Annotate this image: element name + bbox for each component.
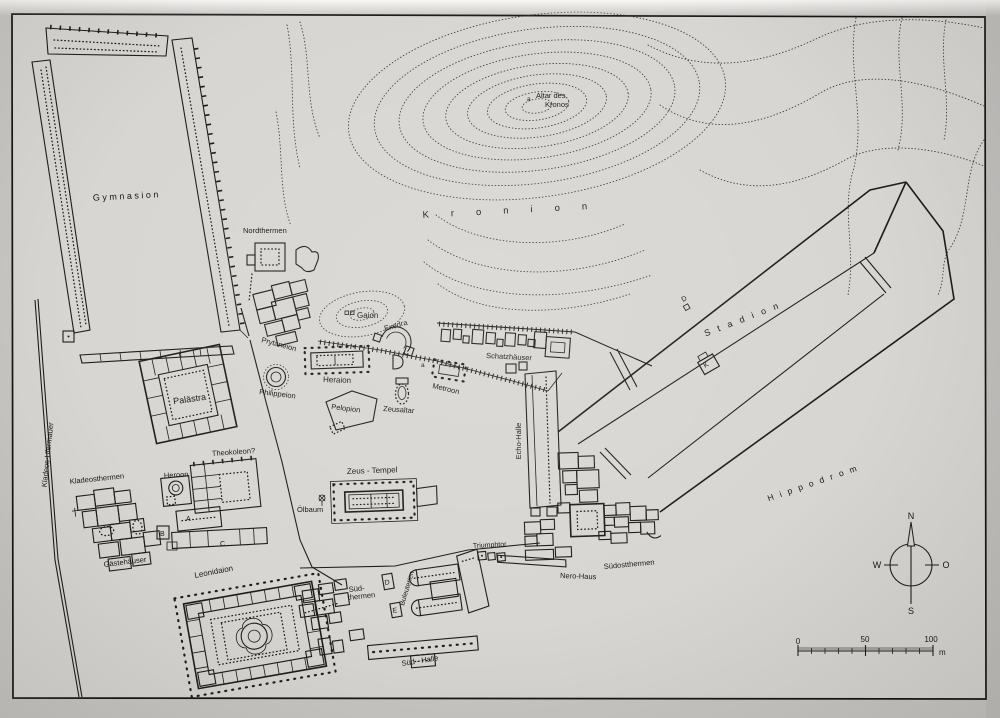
marker-hall-b: B	[160, 531, 165, 538]
compass-east: O	[942, 560, 949, 570]
label-echo-halle: Echo-Halle	[514, 423, 523, 460]
marker-a-metroon: a	[421, 362, 425, 369]
label-heroon: Heroon	[164, 470, 189, 480]
compass-south: S	[908, 606, 914, 616]
compass-north: N	[908, 511, 915, 521]
compass-west: W	[873, 560, 882, 570]
scale-unit: m	[939, 648, 946, 657]
label-kronos: Kronos	[545, 100, 569, 109]
marker-a-kronos: a	[527, 96, 531, 103]
label-zeus-tempel: Zeus - Tempel	[347, 465, 398, 476]
olympia-site-plan-photo: Gymnasion Nordthermen Altar des Kronos K…	[0, 0, 1000, 718]
label-heraion: Heraion	[323, 375, 351, 385]
scale-100: 100	[924, 635, 938, 644]
site-map: Gymnasion Nordthermen Altar des Kronos K…	[0, 0, 1000, 718]
label-gaion: Gaion	[357, 311, 378, 320]
scale-0: 0	[796, 637, 801, 646]
label-altar-des: Altar des	[536, 91, 566, 100]
marker-hall-a: A	[186, 516, 191, 523]
marker-hall-c: C	[220, 541, 225, 548]
label-nordthermen: Nordthermen	[243, 226, 287, 235]
scale-50: 50	[861, 635, 870, 644]
label-oelbaum: Ölbaum	[297, 505, 323, 514]
label-nero-haus: Nero-Haus	[560, 571, 597, 581]
